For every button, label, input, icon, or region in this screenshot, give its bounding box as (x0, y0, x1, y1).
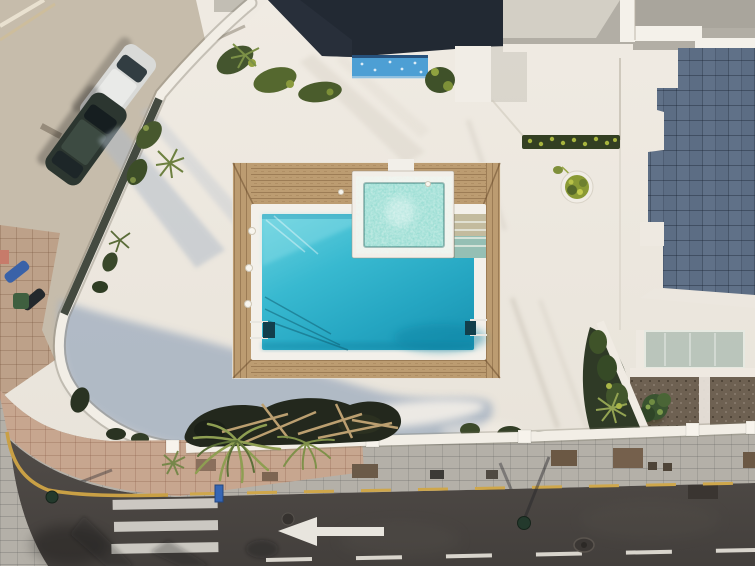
aerial-photo-villa-pool (0, 0, 755, 566)
green-bin (13, 293, 29, 309)
pool-steps (454, 214, 486, 258)
white-structure (455, 46, 491, 102)
villa-courtyard (630, 368, 755, 426)
glass-canopy (636, 330, 744, 372)
structure-shadow (491, 46, 527, 102)
red-marker (0, 250, 9, 264)
scene-canvas (0, 0, 755, 566)
spa-jacuzzi (352, 159, 454, 258)
street-lamp (518, 517, 531, 530)
blue-street-sign (215, 485, 223, 502)
street-lamp (46, 491, 58, 503)
manhole-cover (282, 513, 294, 525)
curb-drain (688, 485, 718, 499)
